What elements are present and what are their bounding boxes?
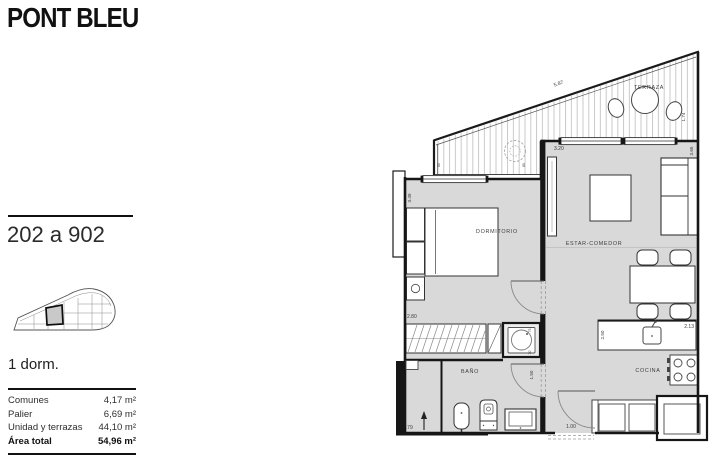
partition-wall bbox=[540, 397, 545, 433]
dim-shower-d: .70 bbox=[528, 351, 532, 356]
dining-chair bbox=[637, 250, 658, 265]
bed bbox=[425, 208, 498, 276]
fridge bbox=[657, 396, 707, 440]
appliance bbox=[629, 404, 655, 431]
duct-shaft bbox=[406, 361, 418, 370]
divider-table-top bbox=[8, 388, 136, 390]
dim-terrace-length: 5.87 bbox=[553, 80, 564, 89]
dim-parapet-left: 80 bbox=[437, 163, 441, 167]
dim-kitchen-depth: 2.50 bbox=[600, 330, 605, 339]
vanity-sink bbox=[505, 409, 536, 430]
area-label: Área total bbox=[8, 435, 93, 449]
stove bbox=[667, 355, 698, 385]
dim-bedroom-width: 2.80 bbox=[407, 314, 417, 320]
dining-chair bbox=[637, 304, 658, 319]
page: PONT BLEU 202 a 902 1 dorm. Comunes 4,17… bbox=[0, 0, 720, 461]
area-value: 54,96 m² bbox=[93, 435, 136, 449]
dim-living-width: 3.20 bbox=[554, 146, 564, 152]
kitchen-label: COCINA bbox=[635, 368, 660, 374]
partition-wall bbox=[540, 314, 545, 364]
dim-terrace-depth: 1.74 bbox=[681, 112, 686, 121]
dim-kitchen-width: 2.13 bbox=[684, 324, 694, 330]
bedroom-window bbox=[421, 176, 489, 183]
floor-plan: TERRAZA 5.87 1.74 80 80 bbox=[378, 48, 718, 459]
area-label: Unidad y terrazas bbox=[8, 421, 93, 435]
project-title: PONT BLEU bbox=[7, 2, 138, 34]
divider-table-bottom bbox=[8, 453, 136, 455]
lower-counter bbox=[592, 400, 658, 433]
area-row: Unidad y terrazas 44,10 m² bbox=[8, 421, 136, 435]
nightstand bbox=[407, 208, 425, 300]
divider-top bbox=[8, 215, 133, 217]
appliance bbox=[599, 404, 625, 431]
area-value: 4,17 m² bbox=[93, 394, 136, 408]
dim-bedroom-depth: 3.49 bbox=[407, 193, 412, 202]
exterior-wall-step bbox=[393, 171, 405, 257]
dining-chair bbox=[670, 250, 691, 265]
area-row: Palier 6,69 m² bbox=[8, 408, 136, 422]
key-plan-thumbnail bbox=[12, 280, 122, 336]
bidet bbox=[480, 400, 497, 430]
dim-hall-door: 1.50 bbox=[529, 370, 534, 379]
bedroom-label: DORMITORIO bbox=[476, 229, 518, 235]
area-row-total: Área total 54,96 m² bbox=[8, 435, 136, 449]
partition-wall bbox=[540, 140, 545, 281]
area-value: 44,10 m² bbox=[93, 421, 136, 435]
area-label: Comunes bbox=[8, 394, 93, 408]
area-value: 6,69 m² bbox=[93, 408, 136, 422]
bath-label: BAÑO bbox=[461, 368, 479, 375]
kitchen-counter bbox=[598, 320, 696, 350]
highlighted-unit bbox=[46, 305, 63, 325]
dim-living-depth: 3.65 bbox=[689, 146, 694, 155]
sofa bbox=[661, 158, 698, 235]
living-window bbox=[559, 138, 678, 145]
area-row: Comunes 4,17 m² bbox=[8, 394, 136, 408]
dining-chair bbox=[670, 304, 691, 319]
unit-type: 1 dorm. bbox=[8, 356, 59, 373]
dim-parapet-right: 80 bbox=[522, 163, 526, 167]
living-label: ESTAR-COMEDOR bbox=[566, 241, 623, 247]
coffee-table bbox=[590, 175, 631, 221]
terrace-label: TERRAZA bbox=[634, 85, 664, 91]
shower: .75 .70 bbox=[503, 323, 540, 357]
area-table: Comunes 4,17 m² Palier 6,69 m² Unidad y … bbox=[8, 394, 136, 448]
area-label: Palier bbox=[8, 408, 93, 422]
dim-shower-w: .75 bbox=[528, 329, 532, 334]
unit-range: 202 a 902 bbox=[7, 222, 105, 248]
dim-entry-width: 1.00 bbox=[566, 424, 576, 430]
tv-unit bbox=[548, 157, 557, 236]
dining-table bbox=[630, 266, 695, 303]
